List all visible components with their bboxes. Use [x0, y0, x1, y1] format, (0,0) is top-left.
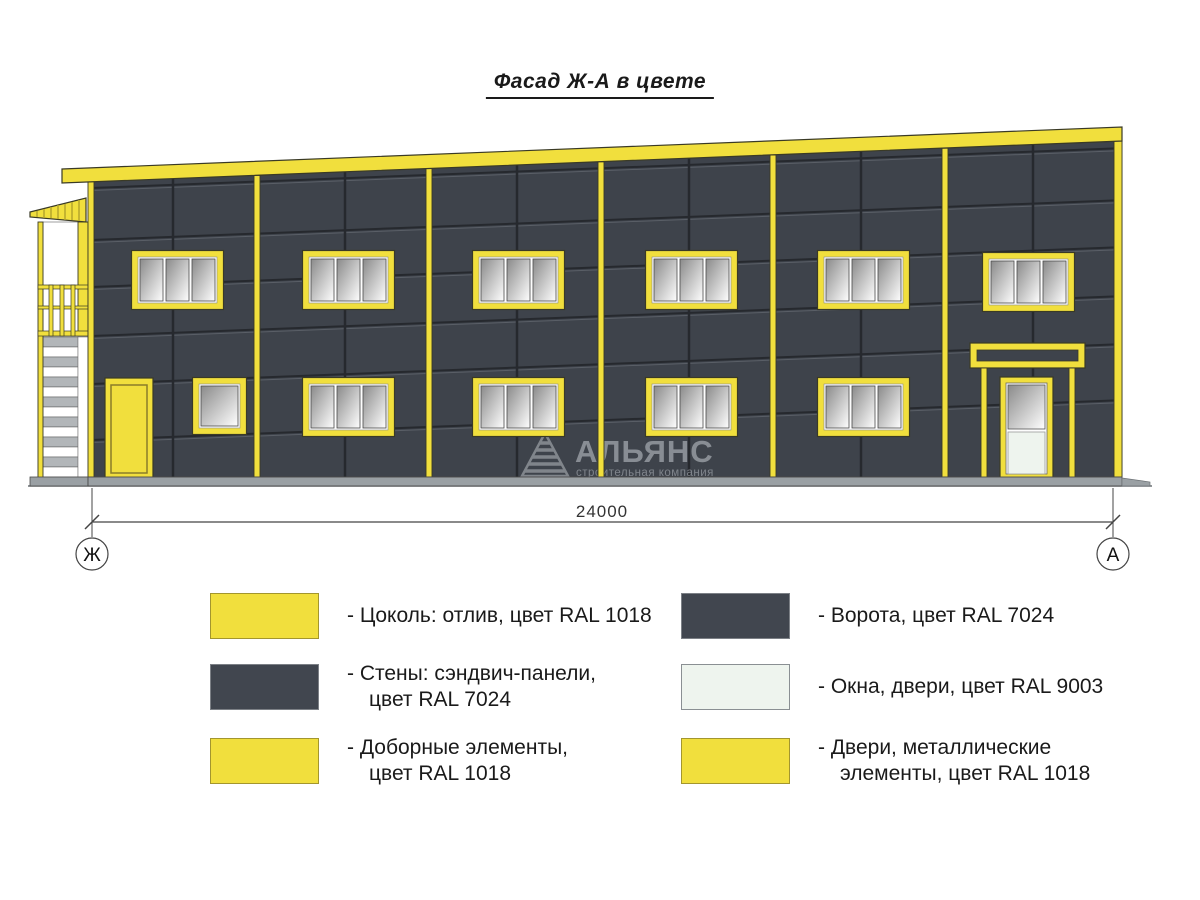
facade-drawing-sheet: Фасад Ж-А в цвете [0, 0, 1200, 900]
stair-base [30, 477, 88, 486]
legend-item-walls: - Стены: сэндвич-панели, цвет RAL 7024 [210, 661, 596, 713]
legend-item-plinth: - Цоколь: отлив, цвет RAL 1018 [210, 593, 652, 639]
watermark-name: АЛЬЯНС [575, 434, 714, 469]
axis-right-label: А [1107, 545, 1120, 566]
stair-steps [38, 337, 78, 477]
dimension-value: 24000 [576, 502, 628, 521]
legend-item-windows-doors: - Окна, двери, цвет RAL 9003 [681, 664, 1103, 710]
legend-swatch-ral1018 [210, 738, 319, 784]
legend-item-trim: - Доборные элементы, цвет RAL 1018 [210, 735, 568, 787]
legend-item-gates: - Ворота, цвет RAL 7024 [681, 593, 1054, 639]
stair-tower [30, 198, 88, 486]
axis-left-label: Ж [83, 545, 101, 566]
stair-canopy [30, 198, 86, 222]
legend-swatch-ral1018 [210, 593, 319, 639]
facade-elevation-svg: АЛЬЯНС строительная компания [0, 0, 1200, 585]
legend-item-metal-doors: - Двери, металлические элементы, цвет RA… [681, 735, 1090, 787]
ground-right-wedge [1122, 478, 1150, 486]
canopy-post-left [981, 368, 987, 478]
stair-post-left [38, 222, 43, 478]
metal-door-left [105, 378, 153, 478]
axis-marker-left: Ж [76, 538, 108, 570]
legend-swatch-ral7024 [681, 593, 790, 639]
legend-swatch-ral9003 [681, 664, 790, 710]
canopy-post-right [1069, 368, 1075, 478]
legend-swatch-ral7024 [210, 664, 319, 710]
axis-marker-right: А [1097, 538, 1129, 570]
legend-swatch-ral1018 [681, 738, 790, 784]
stair-post-right [78, 222, 88, 336]
entrance-door [1000, 377, 1053, 478]
plinth-base [88, 477, 1122, 486]
entrance-canopy [970, 343, 1085, 368]
